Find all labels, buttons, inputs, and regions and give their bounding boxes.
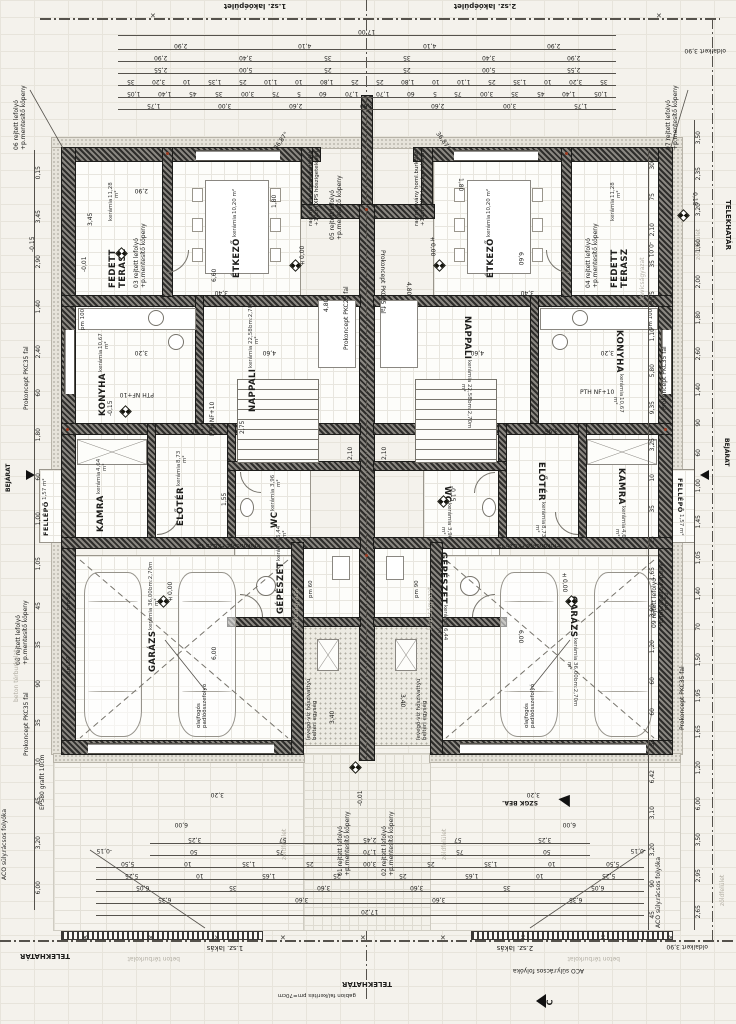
callout-03: 03 rejtett lefolyó +p.mentesítő köpeny: [134, 178, 148, 288]
dim-value: 10: [535, 872, 545, 879]
note-marble: rag.márvány homl.burkolat +10cm XPS hősz…: [308, 116, 320, 226]
dim-chain-top-total: 17,00: [118, 26, 616, 36]
note-aco: ACO süly.rácsos folyóka: [2, 760, 9, 880]
dim: 3,40: [506, 288, 534, 295]
dim: 3,20: [196, 790, 224, 797]
dim-value: 35: [599, 78, 609, 85]
dim-chain-bottom-2: 50751,707550: [150, 846, 590, 856]
label-beton: beton térburkolat: [540, 954, 620, 961]
dim: 2,10: [348, 430, 355, 460]
dim-value: 2,90: [546, 42, 561, 49]
dim-value: 1,20: [649, 640, 656, 653]
dim-value: 3,40: [238, 54, 253, 61]
dim: 3,95: [530, 426, 558, 433]
level-value: ±0,00: [168, 572, 175, 602]
label-pm: pm 50: [66, 650, 72, 674]
dim-value: 1,80: [695, 311, 702, 324]
dim-value: 3,20: [568, 78, 583, 85]
label-pm: pm 90: [414, 574, 420, 598]
dim-chain-bottom-total: 17,20: [96, 906, 644, 916]
dim-value: 10: [294, 78, 304, 85]
dim-value: 2,95: [695, 869, 702, 882]
dim-value: 9,35: [649, 401, 656, 414]
dim-value: 1,35: [241, 860, 256, 867]
note-aco: ACO süly.rácsos folyóka: [656, 836, 663, 928]
dim-value: 1,35: [207, 78, 222, 85]
marker-dot: [166, 152, 169, 155]
label-pm: pm 100: [80, 306, 86, 330]
dim-value: 3,20: [649, 843, 656, 856]
dim: 3,40: [398, 694, 405, 724]
label-oldalkert: oldalkert 3,90: [648, 942, 708, 949]
dim: 6,00: [160, 820, 188, 827]
dim-value: 75: [455, 848, 465, 855]
dim-value: 6,42: [649, 770, 656, 783]
title-building-left: 1.sz. lakóépület: [200, 2, 310, 10]
dim-value: 3,60: [409, 884, 424, 891]
dim-value: 1,05: [593, 90, 608, 97]
dim-value: 35: [402, 54, 412, 61]
title-unit-left: 1.sz. lakás: [180, 944, 270, 952]
dim: 4,60: [248, 348, 276, 355]
callout-06: 06 rejtett lefolyó +p.mentesítő köpeny: [14, 30, 28, 150]
dim-value: 3,00: [217, 102, 232, 109]
dim-value: 6,00: [35, 881, 42, 894]
dim: 4,60: [456, 348, 484, 355]
room-label-kamra-right: KAMRA kerámia 4,64 m²: [614, 468, 626, 532]
dim-value: 45: [35, 602, 42, 610]
dim-value: 6,05: [135, 884, 150, 891]
dim-value: 90: [695, 419, 702, 427]
note-heatpump: levegő-víz hőszivattyú beltéri egység: [416, 640, 428, 740]
dim-value: 25: [375, 78, 385, 85]
room-label-garazs-left: GARÁZS kerámia 36,00 m² bm:2,70m: [148, 596, 160, 672]
room-label-kamra-left: KAMRA kerámia 4,64 m²: [96, 468, 108, 532]
dim-value: 1,65: [464, 872, 479, 879]
dim-value: 60: [406, 90, 416, 97]
dim-value: 4,10: [297, 42, 312, 49]
room-label-nappali-left: NAPPALI kerámia 22,58 m² bm:2,70m: [248, 316, 260, 412]
dim-value: 1,40: [35, 300, 42, 313]
dim-value: 90: [35, 680, 42, 688]
level-value: -0,01: [82, 242, 89, 272]
dim-value: 1,80: [400, 78, 415, 85]
label-telekhatar: TELEKHATÁR: [300, 980, 392, 988]
dim: 2,75: [240, 404, 247, 434]
dim: 6,00: [516, 630, 523, 660]
label-kavics: kavicságyazat: [294, 560, 301, 630]
room-label-etkezo-left: ÉTKEZŐ kerámia 10,20 m²: [232, 178, 242, 278]
dim-value: 35: [502, 884, 512, 891]
dim-value: 3,20: [151, 78, 166, 85]
dim-value: 1,65: [695, 725, 702, 738]
dim-value: 1,35: [512, 78, 527, 85]
dim-value: 10: [35, 758, 42, 766]
dim-value: 5: [432, 90, 438, 97]
dim-value: 3,25: [649, 438, 656, 451]
dim-value: 1,00: [35, 512, 42, 525]
dim-value: 35: [649, 505, 656, 513]
dim-value: 1,65: [261, 872, 276, 879]
dim-value: 10: [183, 860, 193, 867]
dim-value: 3,20: [695, 203, 702, 216]
dim-value: 3,00: [362, 860, 377, 867]
title-unit-right: 2.sz. lakás: [470, 944, 560, 952]
dim-value: 3,00: [240, 90, 255, 97]
dim-value: 25: [332, 872, 342, 879]
dim-value: 35: [510, 90, 520, 97]
room-label-konyha-right: KONYHA kerámia 10,67 m²: [612, 330, 624, 416]
note-pkc35: Prokoncept PKC35 fal: [680, 620, 687, 730]
dim-value: 2,80: [359, 102, 374, 109]
dim-value: 10: [195, 872, 205, 879]
dim-value: 75: [271, 90, 281, 97]
room-label-etkezo-right: ÉTKEZŐ kerámia 10,20 m²: [486, 178, 496, 278]
dim-value: 6,05: [590, 884, 605, 891]
note-oil-drain: olajfogós padlóösszefolyó: [524, 648, 536, 728]
dim-value: 60: [318, 90, 328, 97]
dim-value: 2,55: [566, 66, 581, 73]
dim: 4,80: [404, 282, 411, 312]
level-value: -0,15: [448, 486, 455, 516]
dim-value: 35: [126, 78, 136, 85]
dim: 4,80: [324, 282, 331, 312]
dim-value: 50: [542, 848, 552, 855]
dim-value: 3,40: [481, 54, 496, 61]
dim-value: 25: [487, 78, 497, 85]
dim-value: 3,60: [316, 884, 331, 891]
dim-value: 1,00: [695, 479, 702, 492]
dim-value: 30: [649, 162, 656, 170]
dim-value: 17,00: [357, 28, 376, 35]
dim-value: 1,40: [157, 90, 172, 97]
dim-chain-top-5: 1,051,4045353,00755601,701,70605753,0035…: [118, 88, 616, 98]
dim-value: 60: [695, 449, 702, 457]
dim: 6,00: [548, 820, 576, 827]
label-beton: beton térburkolat: [100, 954, 180, 961]
dim-value: 2,90: [173, 42, 188, 49]
dim-value: 3,10: [649, 806, 656, 819]
dim-value: 75: [453, 90, 463, 97]
dim-value: 3,95: [649, 291, 656, 304]
dim-chain-top-6: 1,753,002,602,802,603,001,75: [118, 100, 616, 110]
note-pkc25: Prokoncept PKC25 fal: [344, 250, 351, 350]
dim-value: 6,00: [695, 797, 702, 810]
note-pkc25: Prokoncept PKC25 fal: [170, 541, 260, 548]
dim-value: 5,00: [238, 66, 253, 73]
level-value: ±0,00: [300, 236, 307, 266]
dim-value: 6,35: [157, 896, 172, 903]
room-label-terasz-left: FEDETT TERASZ kerámia 11,28 m²: [108, 178, 128, 288]
dim-value: 35: [323, 54, 333, 61]
note-oil-drain: olajfogós padlóösszefolyó: [196, 648, 208, 728]
dim-value: 2,90: [566, 54, 581, 61]
dim-value: 1,60: [695, 239, 702, 252]
dim-value: 1,40: [561, 90, 576, 97]
label-szgk: SZGK BEÁ.: [488, 798, 538, 805]
dim-value: 50: [189, 848, 199, 855]
dim-value: 45: [536, 90, 546, 97]
dim-value: 35: [649, 739, 656, 747]
dim: 6,60: [212, 252, 219, 282]
dim-value: 5,50: [120, 860, 135, 867]
dim-value: 3,50: [695, 131, 702, 144]
dim-value: 10: [543, 78, 553, 85]
dim-value: 2,90: [35, 255, 42, 268]
dim-value: 70: [695, 623, 702, 631]
dim-value: 1,65: [649, 567, 656, 580]
label-pm: pm 50: [66, 586, 72, 610]
dim: 1,80: [456, 178, 463, 208]
callout-05: 05 rejtett lefolyó +p.mentesítő köpeny: [330, 130, 344, 240]
dim-chain-top-2: 2,903,4035353,402,90: [118, 52, 616, 62]
dim-chain-bottom-4: 5,25101,6525251,65105,25: [96, 870, 644, 880]
dim-value: 6,35: [568, 896, 583, 903]
dim-value: 35: [35, 719, 42, 727]
dim-value: 3,90: [649, 604, 656, 617]
dim-value: 3,50: [695, 833, 702, 846]
dim: 6,60: [516, 252, 523, 282]
dim-value: 1,10: [263, 78, 278, 85]
label-oldalkert: oldalkert 3,90: [666, 46, 726, 53]
dim-chain-right-inner: 30752,10353,951,105,809,353,251035251,65…: [648, 150, 656, 930]
dim-value: 10: [649, 474, 656, 482]
level-value: ±0,00: [560, 572, 567, 602]
dim-value: 2,35: [695, 167, 702, 180]
label-beton: beton térburkolat: [14, 616, 21, 702]
dim-value: 25: [323, 66, 333, 73]
dim-value: 2,90: [153, 54, 168, 61]
dim-value: 75: [275, 848, 285, 855]
level-value: -0,01: [358, 776, 365, 806]
room-label-gepeszet-left: GÉPÉSZET kerámia 6,44 m²: [276, 552, 288, 614]
dim-value: 35: [228, 884, 238, 891]
dim-value: 2,10: [649, 223, 656, 236]
dim-value: 5: [296, 90, 302, 97]
dim-value: 1,45: [695, 515, 702, 528]
dim-chain-top-3: 2,555,0025255,002,55: [118, 64, 616, 74]
dim-chain-right-outer: 3,502,353,201,602,001,802,601,4090601,00…: [694, 120, 702, 930]
dim-value: 60: [649, 677, 656, 685]
dim-value: 2,45: [362, 836, 377, 843]
level-value: -0,15: [86, 846, 112, 853]
dim: 1,55: [222, 476, 229, 506]
dim-value: 2,65: [695, 905, 702, 918]
dim-value: 2,55: [153, 66, 168, 73]
dim-value: 1,75: [573, 102, 588, 109]
dim: 3,20: [120, 348, 148, 355]
dim-value: 3,20: [35, 836, 42, 849]
note-aco: ACO süly.rácsos folyóka: [492, 966, 584, 973]
label-kavics: kavicságyazat: [428, 560, 435, 630]
note-pkc35: Prokoncept PKC35 fal: [24, 300, 31, 410]
label-telekhatar: TELEKHATÁR: [724, 200, 732, 286]
dim-value: 10: [431, 78, 441, 85]
dim-chain-bottom-1: 3,25572,45573,25: [150, 834, 590, 844]
dim-value: 1,05: [126, 90, 141, 97]
dim-value: 25: [649, 536, 656, 544]
marker-dot: [565, 152, 568, 155]
dim-value: 1,05: [35, 557, 42, 570]
dim-value: 57: [453, 836, 463, 843]
dim: 3,45: [88, 196, 95, 226]
dim-value: 1,20: [695, 761, 702, 774]
note-pkc35: Prokoncept PKC35 fal: [24, 646, 31, 756]
label-zoldfelulet: zöldfelület: [720, 836, 727, 906]
note-pkc25: Prokoncept PKC25 fal: [378, 250, 385, 350]
section-arrow: [536, 994, 546, 1008]
dim-value: 0,15: [35, 166, 42, 179]
dim-value: 1,95: [695, 689, 702, 702]
dim-value: 60: [35, 389, 42, 397]
dim-value: 25: [305, 860, 315, 867]
section-letter: C: [547, 999, 556, 1005]
dim-value: 1,80: [35, 428, 42, 441]
room-label-fellepo-left: FELLÉPŐ 1,57 m²: [42, 478, 50, 536]
room-label-wc-left: WC kerámia 3,96 m²: [270, 486, 282, 528]
dim-value: 90: [649, 880, 656, 888]
dim: 3,40: [200, 288, 228, 295]
dim: 2,90: [120, 186, 148, 193]
dim: 2,10: [382, 430, 389, 460]
dim-value: 1,75: [146, 102, 161, 109]
dim: 6,00: [212, 630, 219, 660]
dim: 1,80: [272, 178, 279, 208]
dim-value: 25: [398, 872, 408, 879]
marker-dot: [664, 428, 667, 431]
dim-value: 3,00: [502, 102, 517, 109]
label-telekhatar: TELEKHATÁR: [0, 952, 70, 960]
dim-value: 1,50: [695, 653, 702, 666]
dim-chain-bottom-5: 6,05353,603,60356,05: [96, 882, 644, 892]
dim-value: 35: [214, 90, 224, 97]
dim-value: 1,40: [695, 383, 702, 396]
dim-value: 1,40: [695, 587, 702, 600]
level-value: ±0,00: [428, 236, 435, 266]
dim-value: 1,70: [375, 90, 390, 97]
dim-value: 2,60: [695, 347, 702, 360]
room-label-garazs-right: GARÁZS kerámia 36,00 m² bm:2,70m: [566, 596, 578, 672]
dim-chain-left: 0,153,452,901,402,40601,80601,001,054535…: [34, 150, 42, 910]
dim-value: 10: [547, 860, 557, 867]
dim-value: 2,40: [35, 345, 42, 358]
label-gabion: gabion fal/kerítés pm=70cm: [246, 992, 356, 998]
dim-value: 1,10: [456, 78, 471, 85]
marker-dot: [365, 554, 368, 557]
dim-value: 3,45: [35, 210, 42, 223]
dim-value: 5,50: [605, 860, 620, 867]
dim-chain-bottom-6: 6,353,603,606,35: [96, 894, 644, 904]
dim: 3,20: [512, 790, 540, 797]
dim-value: 5,80: [649, 364, 656, 377]
dim-value: 60: [649, 708, 656, 716]
level-value: -0,15: [108, 386, 115, 416]
dim-value: 5,00: [481, 66, 496, 73]
dim-value: 25: [350, 78, 360, 85]
label-bejarat-left: BEJÁRAT: [6, 438, 13, 492]
dim-value: 45: [649, 911, 656, 919]
dim-chain-top-4: 353,20101,35251,10101,8025251,80101,1025…: [118, 76, 616, 86]
dim: 3,40: [330, 694, 337, 724]
dim-value: 1,05: [695, 551, 702, 564]
callout-04: 04 rejtett lefolyó +p.mentesítő köpeny: [586, 178, 600, 288]
dim-value: 1,35: [483, 860, 498, 867]
dim-value: 4,10: [422, 42, 437, 49]
dim-value: 1,10: [649, 328, 656, 341]
dim-value: 75: [649, 193, 656, 201]
dim-value: 25: [238, 78, 248, 85]
label-pm: pm 50: [664, 586, 670, 610]
dim-value: 25: [426, 860, 436, 867]
dim: 1,00: [176, 426, 204, 433]
dim-value: 1,80: [319, 78, 334, 85]
note-heatpump: levegő-víz hőszivattyú beltéri egység: [306, 640, 318, 740]
room-label-gepeszet-right: GÉPÉSZET kerámia 6,44 m²: [436, 552, 448, 614]
floor-plan: ✕ ✕ ✕ ✕ ✕ ✕ ✕ ✕ ✕ ✕ ✕: [0, 0, 736, 1024]
room-label-fellepo-right: FELLÉPŐ 1,57 m²: [676, 478, 684, 536]
room-label-nappali-right: NAPPALI kerámia 22,58 m² bm:2,70m: [460, 316, 472, 412]
note-marble: rag.márvány homl.burkolat +10cm XPS hősz…: [414, 116, 426, 226]
label-bejarat-right: BEJÁRAT: [722, 438, 729, 492]
dim-value: 2,60: [288, 102, 303, 109]
label-pm: pm 60: [308, 574, 314, 598]
title-building-right: 2.sz. lakóépület: [430, 2, 540, 10]
dim-value: 3,25: [187, 836, 202, 843]
note-pkc25: Prokoncept PKC25 fal: [470, 541, 560, 548]
dim-value: 3,00: [479, 90, 494, 97]
dim-value: 45: [35, 797, 42, 805]
level-value: -0,15: [620, 846, 646, 853]
dim-value: 35: [35, 641, 42, 649]
dim-value: 1,70: [344, 90, 359, 97]
dim-value: 3,60: [294, 896, 309, 903]
note-pth: PTH NF+10: [580, 390, 626, 397]
dim-chain-top-1: 2,904,104,102,90: [118, 40, 616, 50]
dim-value: 60: [35, 473, 42, 481]
room-label-terasz-right: FEDETT TERASZ kerámia 11,28 m²: [610, 178, 630, 288]
note-pkc35: Prokoncept PKC35 fal: [662, 300, 669, 410]
note-pth: PTH NF+10: [210, 390, 217, 436]
dim-value: 2,60: [430, 102, 445, 109]
room-label-eloter-right: ELŐTÉR kerámia 8,73 m²: [534, 462, 546, 526]
room-label-eloter-left: ELŐTÉR kerámia 8,73 m²: [176, 462, 188, 526]
marker-dot: [365, 208, 368, 211]
dim-value: 3,25: [537, 836, 552, 843]
dim-value: 2,00: [695, 275, 702, 288]
marker-dot: [66, 428, 69, 431]
dim-value: 1,70: [362, 848, 377, 855]
dim: 3,20: [586, 348, 614, 355]
dim-value: 57: [278, 836, 288, 843]
dim-value: 25: [402, 66, 412, 73]
dim-value: 3,60: [431, 896, 446, 903]
dim-value: 35: [649, 260, 656, 268]
dim-value: 45: [188, 90, 198, 97]
note-pth: PTH NF+10: [108, 390, 154, 397]
dim-chain-bottom-3: 5,50101,35253,00251,35105,50: [96, 858, 644, 868]
dim-value: 5,25: [124, 872, 139, 879]
dim-value: 5,25: [601, 872, 616, 879]
dim-value: 10: [182, 78, 192, 85]
dim-value: 17,20: [360, 908, 379, 915]
